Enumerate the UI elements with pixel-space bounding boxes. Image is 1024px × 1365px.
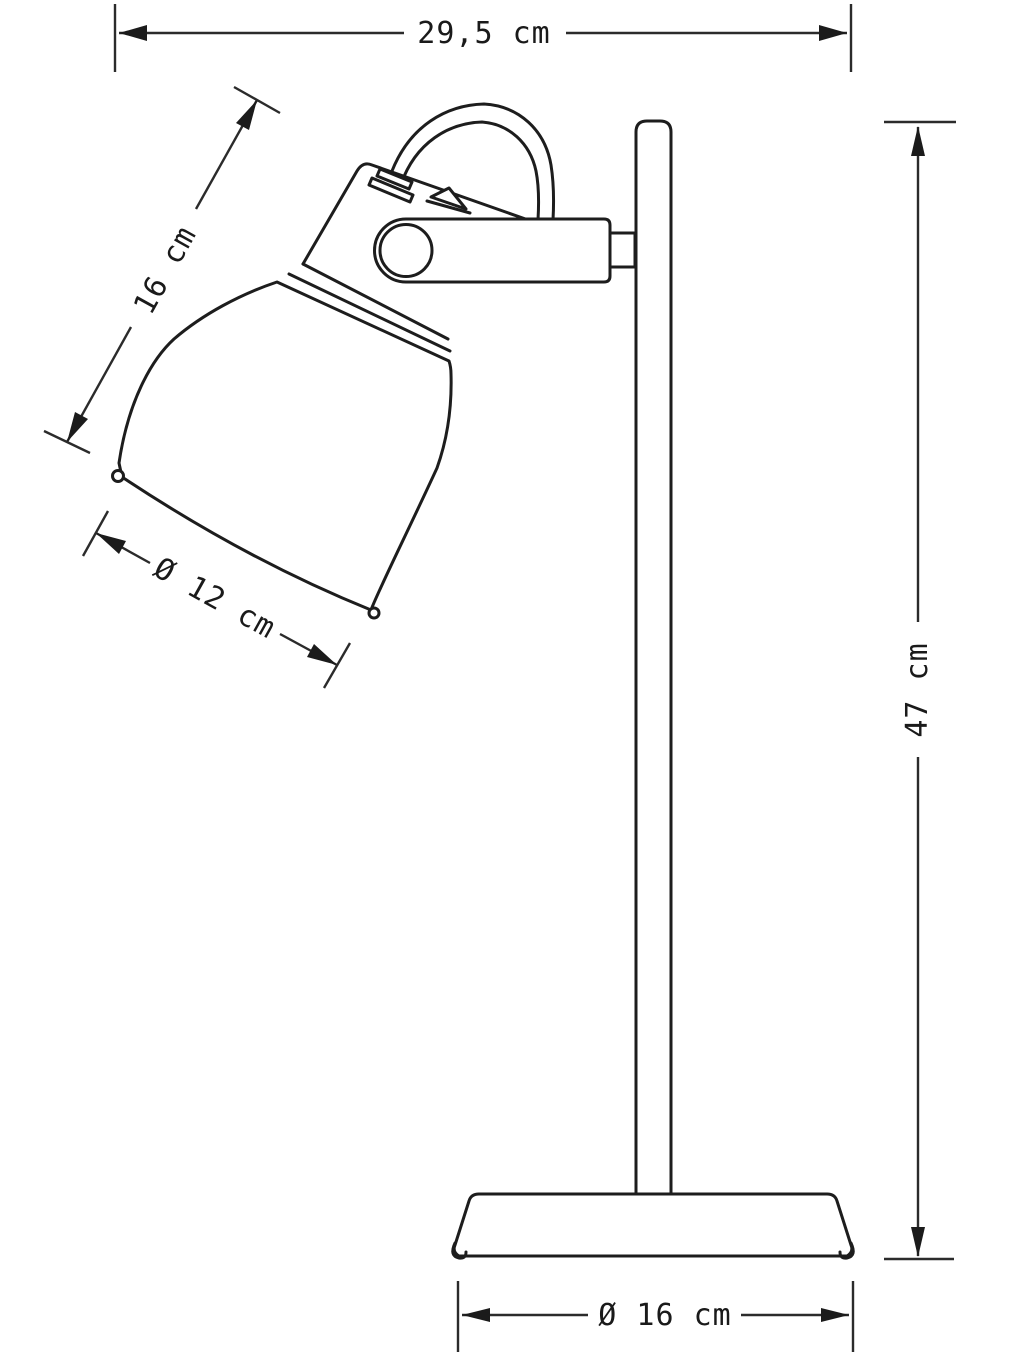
dimension-height-label: 47 cm [900, 642, 935, 737]
dimension-base-arrow-left [462, 1308, 490, 1322]
dimension-height-arrow-bottom [911, 1227, 925, 1257]
lamp-cable-inner [401, 122, 539, 220]
dimension-head-label: 16 cm [127, 220, 204, 320]
dimension-height-arrow-top [911, 126, 925, 156]
dimension-width-arrow-left [119, 25, 147, 41]
diagram-canvas: 29,5 cm 16 cm Ø 12 cm 47 cm [0, 0, 1024, 1365]
dimension-width-top: 29,5 cm [115, 4, 851, 72]
dimension-shade-arrow-left [96, 533, 126, 554]
lamp-shade-rim-left [113, 471, 124, 482]
dimension-shade-tick-left [83, 511, 108, 556]
lamp-shade-rim-right [369, 608, 379, 618]
lamp-arm-bracket [610, 233, 635, 267]
dimension-height-right: 47 cm [884, 122, 956, 1259]
dimension-head-arrow-bottom [67, 412, 88, 442]
dimension-width-label: 29,5 cm [417, 16, 550, 51]
dimension-shade-label: Ø 12 cm [148, 551, 282, 646]
dimension-width-arrow-right [819, 25, 847, 41]
lamp-dimension-drawing: 29,5 cm 16 cm Ø 12 cm 47 cm [0, 0, 1024, 1365]
dimension-base-diameter: Ø 16 cm [458, 1281, 853, 1352]
dimension-head-arrow-top [236, 100, 257, 130]
lamp-pole [636, 121, 671, 1196]
lamp-pivot-knob [380, 225, 432, 277]
dimension-base-arrow-right [821, 1308, 849, 1322]
dimension-base-label: Ø 16 cm [598, 1298, 731, 1333]
dimension-shade-tick-right [324, 643, 350, 688]
dimension-shade-arrow-right [307, 644, 337, 665]
lamp-illustration [113, 104, 854, 1258]
lamp-base [454, 1194, 852, 1256]
